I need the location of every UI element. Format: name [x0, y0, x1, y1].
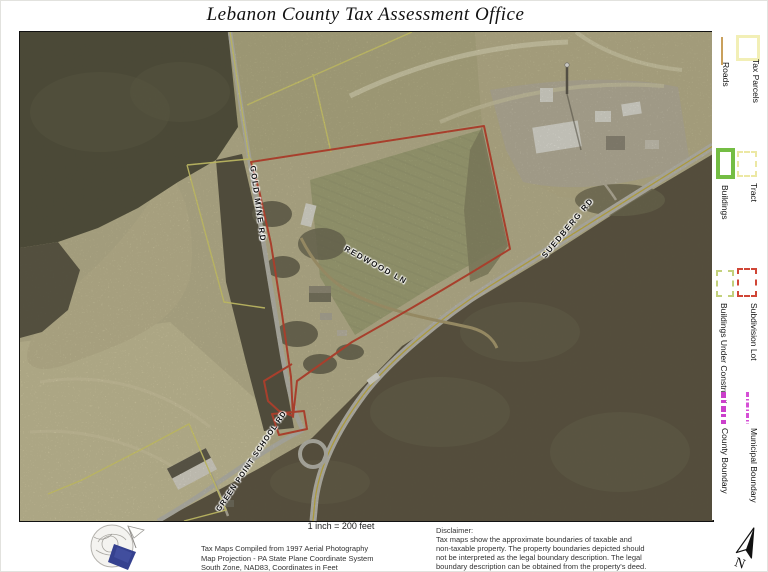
disclaimer-title: Disclaimer:: [436, 526, 646, 535]
compilation-note: Tax Maps Compiled from 1997 Aerial Photo…: [201, 544, 373, 572]
compilation-line-3: South Zone, NAD83, Coordinates in Feet: [201, 563, 373, 572]
subdivision-lot-symbol-icon: [737, 268, 757, 297]
page-title: Lebanon County Tax Assessment Office: [19, 4, 712, 26]
tax-parcels-symbol-icon: [736, 35, 760, 61]
map-legend: Tax Parcels Roads Tract Buildings Subdiv…: [712, 31, 768, 520]
disclaimer-line-3: not be interpreted as the legal boundary…: [436, 553, 646, 562]
municipal-boundary-symbol-icon: [746, 392, 749, 424]
legend-label-subdivision-lot: Subdivision Lot: [749, 303, 759, 361]
county-boundary-symbol-icon: [721, 392, 726, 424]
roads-symbol-icon: [721, 37, 723, 65]
buildings-under-construction-symbol-icon: [716, 270, 734, 297]
legend-label-buildings: Buildings: [720, 185, 730, 220]
legend-label-roads: Roads: [721, 62, 731, 87]
legend-label-tax-parcels: Tax Parcels: [751, 59, 761, 103]
county-seal-logo: [84, 522, 179, 572]
disclaimer-note: Disclaimer: Tax maps show the approximat…: [436, 526, 646, 571]
north-label: N: [732, 555, 747, 572]
disclaimer-line-2: non-taxable property. The property bound…: [436, 544, 646, 553]
legend-label-county-boundary: County Boundary: [720, 428, 730, 494]
tax-map-page: Lebanon County Tax Assessment Office: [0, 0, 768, 572]
north-arrow-icon: N: [731, 524, 765, 572]
aerial-map: GOLD MINE RD REDWOOD LN SUEDBERG RD GREE…: [19, 31, 714, 522]
compilation-line-2: Map Projection - PA State Plane Coordina…: [201, 554, 373, 564]
tract-symbol-icon: [737, 151, 757, 177]
disclaimer-line-1: Tax maps show the approximate boundaries…: [436, 535, 646, 544]
map-scale-text: 1 inch = 200 feet: [241, 521, 441, 531]
buildings-symbol-icon: [716, 148, 735, 179]
legend-label-tract: Tract: [749, 183, 759, 202]
compilation-line-1: Tax Maps Compiled from 1997 Aerial Photo…: [201, 544, 373, 554]
aerial-photo-image: [20, 32, 713, 521]
disclaimer-line-4: boundary description can be obtained fro…: [436, 562, 646, 571]
legend-label-municipal-boundary: Municipal Boundary: [749, 428, 759, 503]
